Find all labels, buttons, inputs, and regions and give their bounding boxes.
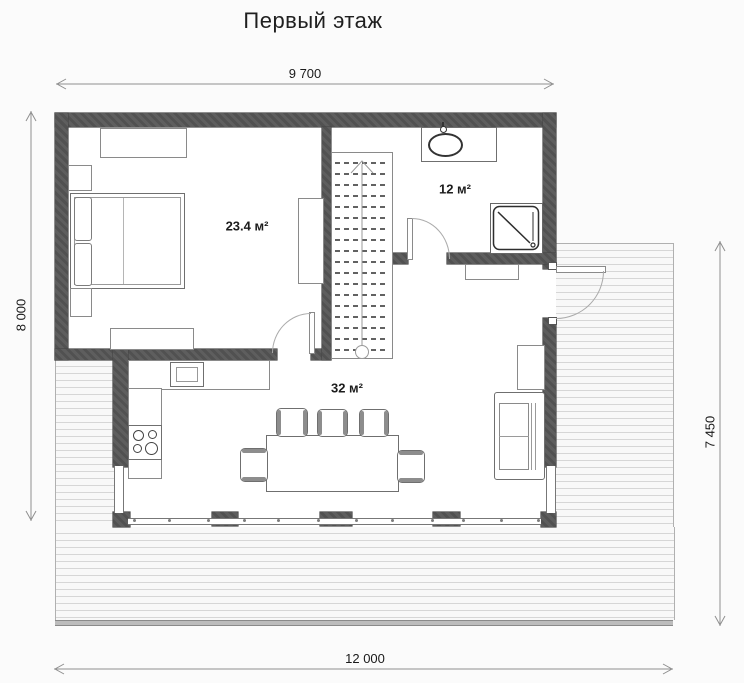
shower-icon bbox=[490, 203, 543, 254]
sofa bbox=[494, 392, 545, 480]
living-area-label: 32 м² bbox=[331, 381, 363, 396]
nightstand-lower bbox=[70, 288, 92, 317]
wall-bathroom-south-right bbox=[447, 253, 556, 264]
page-title: Первый этаж bbox=[243, 8, 382, 34]
dining-chair bbox=[397, 450, 425, 483]
hall-cabinet bbox=[465, 264, 519, 280]
terrace-left bbox=[55, 360, 114, 527]
dining-table bbox=[266, 435, 399, 492]
bedroom-dresser-top bbox=[100, 128, 187, 158]
dimension-left-label: 8 000 bbox=[14, 299, 29, 332]
dining-chair bbox=[276, 408, 308, 437]
dining-chair bbox=[317, 409, 348, 437]
dimension-overall-label: 12 000 bbox=[345, 651, 385, 666]
terrace-edge bbox=[55, 620, 673, 626]
dimension-top-label: 9 700 bbox=[289, 66, 322, 81]
sink-basin-icon bbox=[428, 133, 463, 157]
dining-chair bbox=[359, 409, 389, 437]
faucet-icon bbox=[440, 126, 447, 133]
window-east bbox=[546, 466, 556, 513]
stove-icon bbox=[128, 425, 162, 460]
wall-west-kitchen bbox=[113, 349, 128, 467]
corner-post-se bbox=[541, 512, 556, 527]
side-cabinet bbox=[517, 345, 545, 390]
dimension-right-label: 7 450 bbox=[703, 416, 718, 449]
wall-east-upper bbox=[543, 113, 556, 269]
glazed-south-wall bbox=[128, 518, 541, 525]
staircase bbox=[331, 152, 393, 359]
bed-pillow-1 bbox=[74, 197, 92, 241]
nightstand-upper bbox=[68, 165, 92, 191]
dining-chair bbox=[240, 448, 268, 482]
bedroom-area-label: 23.4 м² bbox=[226, 219, 269, 234]
bedroom-dresser-bottom bbox=[110, 328, 194, 350]
window-west bbox=[114, 466, 124, 513]
bed-pillow-2 bbox=[74, 243, 92, 286]
bedroom-wardrobe bbox=[298, 198, 324, 284]
terrace-bottom bbox=[55, 527, 675, 620]
wall-north bbox=[55, 113, 556, 127]
kitchen-sink-icon bbox=[170, 362, 204, 387]
floor-plan: Первый этаж 9 700 8 000 7 450 8 500 12 0… bbox=[0, 0, 744, 683]
stairs-start-marker bbox=[356, 346, 369, 359]
wall-west-bedroom bbox=[55, 113, 68, 360]
bathroom-area-label: 12 м² bbox=[439, 182, 471, 197]
wall-bedroom-south bbox=[55, 349, 277, 360]
